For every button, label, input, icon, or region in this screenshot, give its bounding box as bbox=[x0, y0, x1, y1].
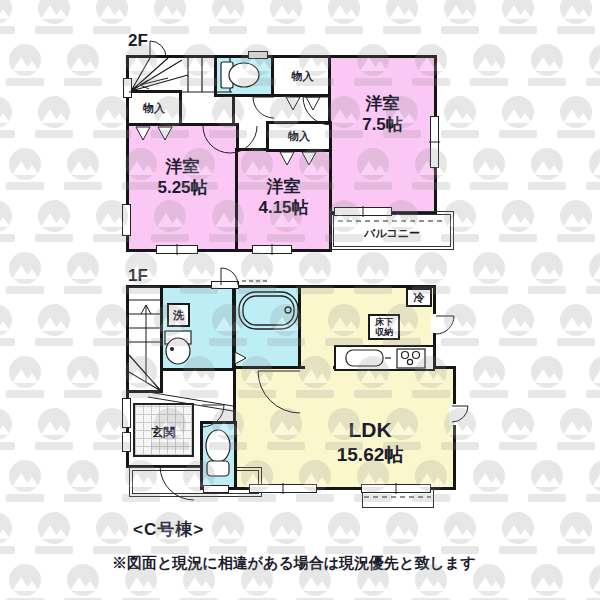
watermark-badge bbox=[34, 408, 74, 450]
watermark-badge bbox=[5, 356, 45, 398]
washroom-1f bbox=[160, 285, 235, 371]
closet-label: 物入 bbox=[129, 93, 179, 124]
closet-label: 物入 bbox=[269, 124, 329, 149]
ldk-label: LDK 15.62帖 bbox=[290, 417, 450, 467]
watermark-badge bbox=[5, 564, 45, 600]
closet-mid-2f: 物入 bbox=[266, 121, 332, 152]
side-door-opening bbox=[449, 404, 457, 425]
watermark-badge bbox=[556, 408, 596, 450]
bedroom-4-15-label: 洋室 4.15帖 bbox=[235, 176, 332, 219]
watermark-badge bbox=[585, 44, 600, 86]
watermark-badge bbox=[556, 304, 596, 346]
watermark-badge bbox=[0, 408, 16, 450]
bedroom-5-25-label: 洋室 5.25帖 bbox=[126, 156, 239, 199]
building-name: <C号棟> bbox=[133, 518, 204, 541]
watermark-badge bbox=[556, 512, 596, 554]
watermark-badge bbox=[556, 0, 596, 34]
watermark-badge bbox=[34, 200, 74, 242]
watermark-badge bbox=[469, 356, 509, 398]
watermark-badge bbox=[5, 44, 45, 86]
watermark-badge bbox=[440, 304, 480, 346]
watermark-badge bbox=[34, 0, 74, 34]
watermark-badge bbox=[63, 44, 103, 86]
watermark-badge bbox=[469, 252, 509, 294]
kitchen-backdoor-opening bbox=[431, 314, 438, 333]
bathroom-1f bbox=[233, 285, 302, 369]
window bbox=[122, 398, 131, 428]
watermark-badge bbox=[324, 0, 364, 34]
window bbox=[123, 78, 132, 98]
toilet-room-2f bbox=[214, 55, 274, 97]
watermark-badge bbox=[556, 200, 596, 242]
bedroom-7-5-label: 洋室 7.5帖 bbox=[330, 93, 435, 136]
closet-left-2f: 物入 bbox=[126, 90, 182, 127]
watermark-badge bbox=[498, 0, 538, 34]
watermark-badge bbox=[440, 0, 480, 34]
porch-inner-line bbox=[132, 470, 259, 494]
watermark-badge bbox=[0, 304, 16, 346]
watermark-badge bbox=[92, 0, 132, 34]
watermark-badge bbox=[469, 460, 509, 502]
watermark-badge bbox=[469, 148, 509, 190]
watermark-badge bbox=[585, 564, 600, 600]
window bbox=[122, 204, 131, 236]
watermark-badge bbox=[150, 0, 190, 34]
window-to-balcony bbox=[334, 207, 392, 216]
refrigerator-box: 冷 bbox=[406, 288, 432, 307]
kitchen-counter bbox=[334, 345, 435, 371]
watermark-badge bbox=[585, 460, 600, 502]
closet-top-2f: 物入 bbox=[271, 55, 334, 97]
staircase-1f bbox=[126, 285, 163, 393]
watermark-badge bbox=[324, 512, 364, 554]
wall-opening-patch bbox=[305, 364, 333, 374]
watermark-badge bbox=[440, 96, 480, 138]
watermark-badge bbox=[34, 96, 74, 138]
watermark-badge bbox=[527, 356, 567, 398]
window bbox=[248, 51, 268, 59]
watermark-badge bbox=[5, 460, 45, 502]
floor-label-1f: 1F bbox=[128, 266, 148, 286]
window bbox=[211, 281, 239, 289]
toilet-room-1f bbox=[200, 421, 237, 490]
watermark-badge bbox=[5, 148, 45, 190]
disclaimer-text: ※図面と現況に相違がある場合は現況優先と致します bbox=[112, 554, 476, 573]
watermark-badge bbox=[585, 356, 600, 398]
watermark-badge bbox=[0, 512, 16, 554]
watermark-badge bbox=[556, 96, 596, 138]
window bbox=[203, 485, 229, 493]
washing-machine-box: 洗 bbox=[167, 303, 190, 327]
balcony-label: バルコニー bbox=[330, 227, 454, 241]
watermark-badge bbox=[498, 200, 538, 242]
watermark-badge bbox=[92, 512, 132, 554]
watermark-badge bbox=[498, 408, 538, 450]
watermark-badge bbox=[527, 252, 567, 294]
watermark-badge bbox=[266, 0, 306, 34]
watermark-badge bbox=[34, 512, 74, 554]
watermark-badge bbox=[266, 512, 306, 554]
floor-label-2f: 2F bbox=[128, 31, 148, 51]
watermark-badge bbox=[63, 564, 103, 600]
window bbox=[252, 245, 292, 254]
entrance-label: 玄関 bbox=[133, 425, 194, 440]
watermark-badge bbox=[527, 44, 567, 86]
watermark-badge bbox=[63, 252, 103, 294]
watermark-badge bbox=[208, 512, 248, 554]
window bbox=[361, 484, 431, 493]
watermark-badge bbox=[585, 148, 600, 190]
watermark-badge bbox=[208, 0, 248, 34]
floor-plan-page: 2F 物入 物入 物入 バルコニー 洋室 7.5帖 洋室 5.25帖 洋室 4.… bbox=[0, 0, 600, 600]
entrance-porch bbox=[129, 467, 262, 497]
watermark-badge bbox=[440, 512, 480, 554]
watermark-badge bbox=[527, 148, 567, 190]
watermark-badge bbox=[63, 356, 103, 398]
watermark-badge bbox=[0, 200, 16, 242]
watermark-badge bbox=[498, 512, 538, 554]
watermark-badge bbox=[0, 0, 16, 34]
watermark-badge bbox=[34, 304, 74, 346]
watermark-badge bbox=[585, 252, 600, 294]
closet-label: 物入 bbox=[274, 58, 331, 94]
watermark-badge bbox=[469, 44, 509, 86]
window bbox=[156, 245, 198, 254]
watermark-badge bbox=[527, 564, 567, 600]
watermark-badge bbox=[0, 96, 16, 138]
watermark-badge bbox=[382, 512, 422, 554]
watermark-badge bbox=[63, 460, 103, 502]
watermark-badge bbox=[63, 148, 103, 190]
window bbox=[249, 484, 317, 493]
watermark-badge bbox=[498, 304, 538, 346]
watermark-badge bbox=[382, 0, 422, 34]
watermark-badge bbox=[527, 460, 567, 502]
watermark-badge bbox=[5, 252, 45, 294]
watermark-badge bbox=[498, 96, 538, 138]
window bbox=[122, 432, 131, 452]
underfloor-storage-box: 床下 収納 bbox=[368, 314, 400, 340]
